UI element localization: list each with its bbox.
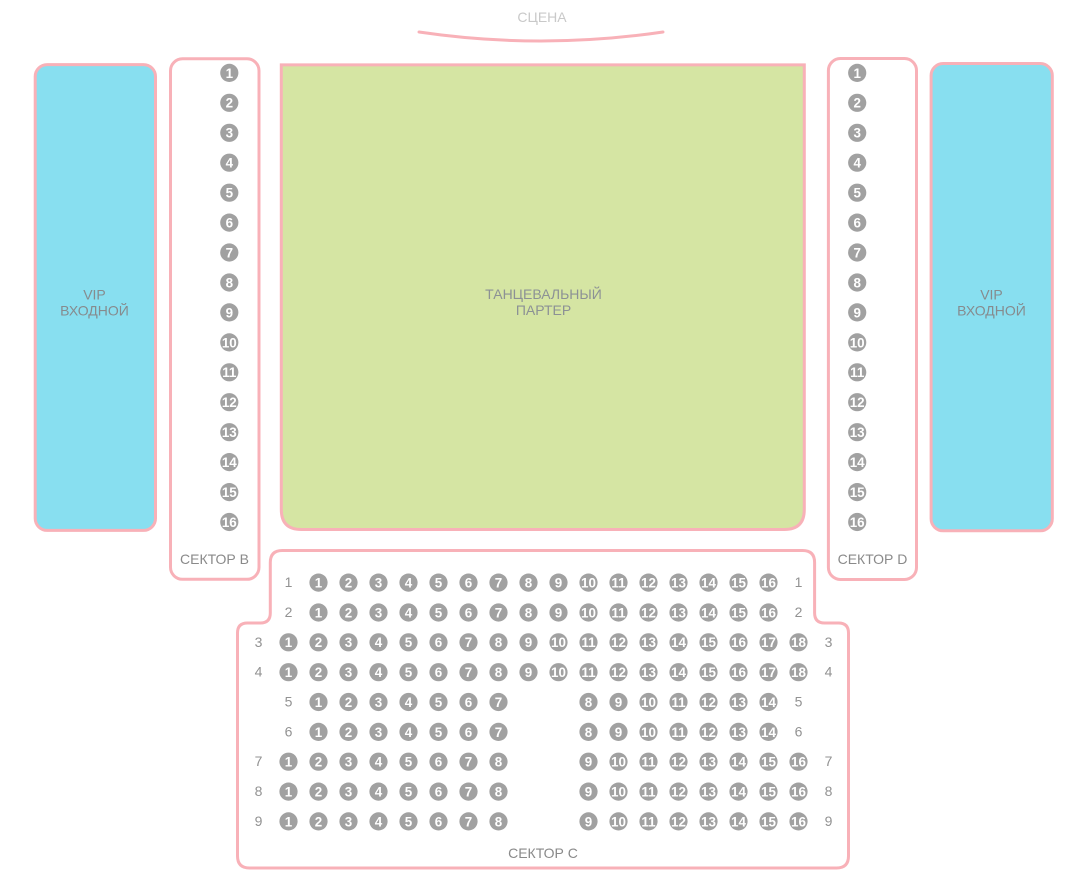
svg-text:1: 1 xyxy=(315,695,323,710)
svg-text:2: 2 xyxy=(285,604,293,620)
svg-text:9: 9 xyxy=(585,755,592,770)
svg-text:6: 6 xyxy=(465,725,472,740)
svg-text:11: 11 xyxy=(850,365,865,380)
svg-text:2: 2 xyxy=(315,814,322,829)
svg-text:13: 13 xyxy=(222,425,237,440)
svg-text:4: 4 xyxy=(405,605,413,620)
svg-text:12: 12 xyxy=(671,785,686,800)
svg-text:6: 6 xyxy=(465,695,472,710)
svg-text:18: 18 xyxy=(791,665,806,680)
svg-text:4: 4 xyxy=(375,665,383,680)
svg-text:6: 6 xyxy=(465,576,472,591)
svg-text:3: 3 xyxy=(375,576,382,591)
svg-text:7: 7 xyxy=(853,245,860,260)
svg-text:16: 16 xyxy=(791,785,806,800)
svg-text:13: 13 xyxy=(701,814,716,829)
svg-text:ПАРТЕР: ПАРТЕР xyxy=(516,302,571,318)
svg-text:СЕКТОР B: СЕКТОР B xyxy=(180,551,249,567)
svg-text:1: 1 xyxy=(315,576,323,591)
svg-text:2: 2 xyxy=(226,96,233,111)
svg-text:3: 3 xyxy=(375,605,382,620)
svg-text:14: 14 xyxy=(671,635,686,650)
svg-text:8: 8 xyxy=(825,783,833,799)
svg-text:17: 17 xyxy=(761,635,776,650)
svg-text:11: 11 xyxy=(641,755,656,770)
svg-text:2: 2 xyxy=(853,96,860,111)
svg-text:5: 5 xyxy=(405,785,413,800)
svg-text:9: 9 xyxy=(525,665,532,680)
svg-text:4: 4 xyxy=(375,785,383,800)
svg-text:2: 2 xyxy=(315,785,322,800)
svg-text:13: 13 xyxy=(671,605,686,620)
svg-text:3: 3 xyxy=(345,665,352,680)
svg-text:VIP: VIP xyxy=(83,287,106,303)
svg-text:2: 2 xyxy=(795,604,803,620)
svg-text:7: 7 xyxy=(495,576,502,591)
svg-text:8: 8 xyxy=(495,785,503,800)
svg-text:12: 12 xyxy=(701,695,716,710)
svg-text:4: 4 xyxy=(375,755,383,770)
svg-text:7: 7 xyxy=(465,785,472,800)
svg-text:6: 6 xyxy=(285,723,293,739)
svg-text:12: 12 xyxy=(611,665,626,680)
svg-text:7: 7 xyxy=(495,725,502,740)
svg-text:СЦЕНА: СЦЕНА xyxy=(517,9,567,25)
svg-text:10: 10 xyxy=(551,665,566,680)
svg-text:14: 14 xyxy=(701,576,716,591)
svg-text:12: 12 xyxy=(222,395,237,410)
svg-text:1: 1 xyxy=(795,574,803,590)
svg-text:VIP: VIP xyxy=(980,287,1003,303)
svg-text:1: 1 xyxy=(285,635,293,650)
svg-text:6: 6 xyxy=(226,216,233,231)
svg-text:11: 11 xyxy=(641,785,656,800)
svg-text:1: 1 xyxy=(285,574,293,590)
svg-text:11: 11 xyxy=(581,665,596,680)
svg-text:2: 2 xyxy=(315,635,322,650)
svg-text:5: 5 xyxy=(405,814,413,829)
svg-text:6: 6 xyxy=(435,785,442,800)
svg-text:2: 2 xyxy=(345,576,352,591)
svg-text:15: 15 xyxy=(731,576,746,591)
svg-text:11: 11 xyxy=(671,725,686,740)
svg-text:14: 14 xyxy=(761,725,776,740)
svg-text:12: 12 xyxy=(671,814,686,829)
svg-text:14: 14 xyxy=(671,665,686,680)
svg-text:4: 4 xyxy=(405,695,413,710)
svg-text:9: 9 xyxy=(585,785,592,800)
svg-text:10: 10 xyxy=(551,635,566,650)
svg-text:10: 10 xyxy=(581,576,596,591)
svg-text:7: 7 xyxy=(495,695,502,710)
svg-text:7: 7 xyxy=(465,814,472,829)
svg-text:5: 5 xyxy=(405,635,413,650)
svg-text:15: 15 xyxy=(701,665,716,680)
svg-text:13: 13 xyxy=(731,725,746,740)
svg-text:13: 13 xyxy=(641,665,656,680)
svg-text:1: 1 xyxy=(853,66,861,81)
svg-text:15: 15 xyxy=(761,785,776,800)
svg-text:8: 8 xyxy=(585,725,593,740)
svg-text:12: 12 xyxy=(641,605,656,620)
svg-text:7: 7 xyxy=(465,755,472,770)
svg-text:4: 4 xyxy=(375,635,383,650)
svg-text:15: 15 xyxy=(222,485,237,500)
svg-text:14: 14 xyxy=(731,755,746,770)
svg-text:ВХОДНОЙ: ВХОДНОЙ xyxy=(60,302,129,319)
svg-text:11: 11 xyxy=(222,365,237,380)
svg-text:13: 13 xyxy=(671,576,686,591)
svg-text:8: 8 xyxy=(495,755,503,770)
svg-text:16: 16 xyxy=(222,515,237,530)
svg-text:4: 4 xyxy=(825,664,833,680)
svg-text:9: 9 xyxy=(615,695,622,710)
svg-text:1: 1 xyxy=(315,725,323,740)
svg-text:6: 6 xyxy=(853,216,860,231)
svg-text:6: 6 xyxy=(465,605,472,620)
svg-text:1: 1 xyxy=(285,814,293,829)
svg-text:2: 2 xyxy=(315,665,322,680)
svg-text:8: 8 xyxy=(226,275,234,290)
svg-text:ТАНЦЕВАЛЬНЫЙ: ТАНЦЕВАЛЬНЫЙ xyxy=(485,285,602,302)
svg-text:4: 4 xyxy=(853,156,861,171)
svg-text:13: 13 xyxy=(701,755,716,770)
svg-text:СЕКТОР D: СЕКТОР D xyxy=(838,551,908,567)
svg-text:8: 8 xyxy=(495,814,503,829)
svg-text:9: 9 xyxy=(255,813,263,829)
svg-text:7: 7 xyxy=(465,635,472,650)
svg-text:10: 10 xyxy=(222,335,237,350)
svg-text:8: 8 xyxy=(585,695,593,710)
svg-text:5: 5 xyxy=(226,186,234,201)
svg-text:5: 5 xyxy=(435,605,443,620)
svg-text:11: 11 xyxy=(611,576,626,591)
svg-text:14: 14 xyxy=(731,814,746,829)
svg-text:1: 1 xyxy=(285,785,293,800)
svg-text:10: 10 xyxy=(611,755,626,770)
svg-text:7: 7 xyxy=(465,665,472,680)
svg-text:10: 10 xyxy=(641,725,656,740)
svg-text:15: 15 xyxy=(761,814,776,829)
svg-text:17: 17 xyxy=(761,665,776,680)
svg-text:9: 9 xyxy=(525,635,532,650)
svg-text:2: 2 xyxy=(345,605,352,620)
svg-text:5: 5 xyxy=(853,186,861,201)
svg-text:16: 16 xyxy=(761,605,776,620)
svg-text:8: 8 xyxy=(853,275,861,290)
svg-text:11: 11 xyxy=(611,605,626,620)
svg-text:6: 6 xyxy=(795,723,803,739)
svg-text:3: 3 xyxy=(226,126,233,141)
svg-text:16: 16 xyxy=(731,665,746,680)
svg-text:9: 9 xyxy=(555,605,562,620)
svg-text:14: 14 xyxy=(701,605,716,620)
svg-text:3: 3 xyxy=(345,785,352,800)
svg-text:16: 16 xyxy=(791,755,806,770)
svg-text:1: 1 xyxy=(226,66,234,81)
svg-text:11: 11 xyxy=(671,695,686,710)
svg-text:13: 13 xyxy=(731,695,746,710)
svg-text:11: 11 xyxy=(641,814,656,829)
svg-text:СЕКТОР C: СЕКТОР C xyxy=(508,845,578,861)
svg-text:5: 5 xyxy=(435,576,443,591)
svg-text:15: 15 xyxy=(761,755,776,770)
svg-text:4: 4 xyxy=(226,156,234,171)
svg-text:3: 3 xyxy=(375,695,382,710)
svg-text:13: 13 xyxy=(641,635,656,650)
svg-text:10: 10 xyxy=(641,695,656,710)
svg-text:14: 14 xyxy=(850,455,865,470)
svg-text:10: 10 xyxy=(611,814,626,829)
svg-text:8: 8 xyxy=(495,665,503,680)
svg-text:3: 3 xyxy=(345,635,352,650)
svg-text:8: 8 xyxy=(525,576,533,591)
svg-text:14: 14 xyxy=(731,785,746,800)
svg-text:5: 5 xyxy=(405,755,413,770)
svg-text:8: 8 xyxy=(255,783,263,799)
svg-text:4: 4 xyxy=(375,814,383,829)
svg-text:6: 6 xyxy=(435,814,442,829)
svg-text:3: 3 xyxy=(345,755,352,770)
svg-text:12: 12 xyxy=(671,755,686,770)
svg-text:ВХОДНОЙ: ВХОДНОЙ xyxy=(957,302,1026,319)
svg-text:16: 16 xyxy=(761,576,776,591)
svg-text:9: 9 xyxy=(226,305,233,320)
svg-text:6: 6 xyxy=(435,665,442,680)
svg-text:1: 1 xyxy=(285,755,293,770)
svg-text:3: 3 xyxy=(255,634,263,650)
svg-text:4: 4 xyxy=(405,725,413,740)
svg-text:5: 5 xyxy=(795,694,803,710)
svg-text:12: 12 xyxy=(701,725,716,740)
svg-text:15: 15 xyxy=(701,635,716,650)
svg-text:12: 12 xyxy=(611,635,626,650)
svg-text:7: 7 xyxy=(226,245,233,260)
svg-text:12: 12 xyxy=(641,576,656,591)
svg-text:6: 6 xyxy=(435,635,442,650)
svg-text:4: 4 xyxy=(405,576,413,591)
svg-text:9: 9 xyxy=(615,725,622,740)
svg-text:11: 11 xyxy=(581,635,596,650)
svg-text:13: 13 xyxy=(701,785,716,800)
svg-text:15: 15 xyxy=(731,605,746,620)
svg-text:8: 8 xyxy=(525,605,533,620)
svg-text:7: 7 xyxy=(255,753,263,769)
svg-text:18: 18 xyxy=(791,635,806,650)
svg-text:4: 4 xyxy=(255,664,263,680)
svg-text:7: 7 xyxy=(825,753,833,769)
svg-text:15: 15 xyxy=(850,485,865,500)
svg-text:12: 12 xyxy=(850,395,865,410)
svg-text:2: 2 xyxy=(345,695,352,710)
svg-text:9: 9 xyxy=(555,576,562,591)
svg-text:14: 14 xyxy=(222,455,237,470)
svg-text:10: 10 xyxy=(611,785,626,800)
svg-text:9: 9 xyxy=(853,305,860,320)
svg-text:3: 3 xyxy=(345,814,352,829)
svg-text:3: 3 xyxy=(825,634,833,650)
svg-text:16: 16 xyxy=(731,635,746,650)
svg-text:3: 3 xyxy=(375,725,382,740)
svg-text:5: 5 xyxy=(285,694,293,710)
svg-text:5: 5 xyxy=(435,725,443,740)
svg-text:9: 9 xyxy=(585,814,592,829)
svg-text:5: 5 xyxy=(435,695,443,710)
svg-text:13: 13 xyxy=(850,425,865,440)
svg-text:16: 16 xyxy=(850,515,865,530)
svg-text:10: 10 xyxy=(850,335,865,350)
svg-text:10: 10 xyxy=(581,605,596,620)
svg-text:16: 16 xyxy=(791,814,806,829)
svg-text:3: 3 xyxy=(853,126,860,141)
svg-text:1: 1 xyxy=(285,665,293,680)
svg-text:2: 2 xyxy=(345,725,352,740)
svg-text:8: 8 xyxy=(495,635,503,650)
svg-text:9: 9 xyxy=(825,813,833,829)
svg-text:5: 5 xyxy=(405,665,413,680)
svg-text:14: 14 xyxy=(761,695,776,710)
svg-text:6: 6 xyxy=(435,755,442,770)
svg-text:7: 7 xyxy=(495,605,502,620)
svg-text:2: 2 xyxy=(315,755,322,770)
svg-text:1: 1 xyxy=(315,605,323,620)
